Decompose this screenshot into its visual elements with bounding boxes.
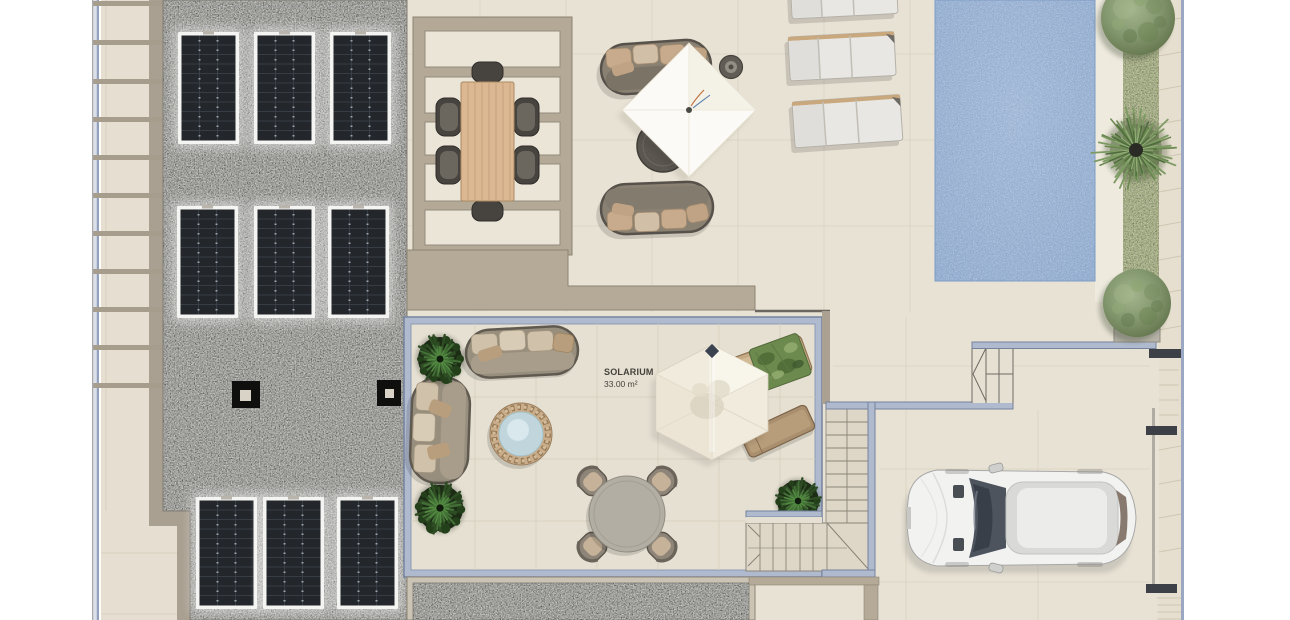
svg-text:SOLARIUM: SOLARIUM [604, 367, 654, 377]
svg-text:33.00 m²: 33.00 m² [604, 379, 638, 389]
